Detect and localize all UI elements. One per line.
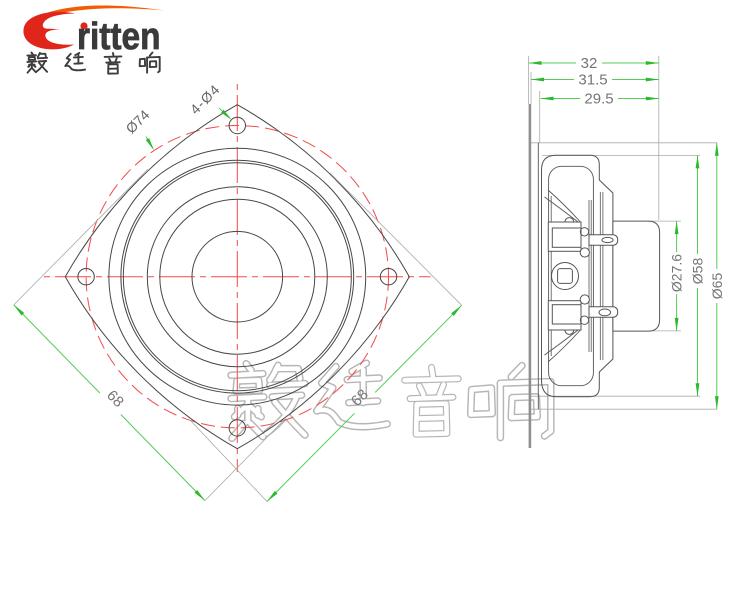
svg-text:Ø74: Ø74 — [122, 106, 152, 136]
svg-text:Ø27.6: Ø27.6 — [669, 254, 685, 292]
svg-text:29.5: 29.5 — [584, 91, 613, 108]
svg-text:32: 32 — [581, 55, 598, 72]
svg-text:4-Ø4: 4-Ø4 — [187, 81, 224, 118]
svg-text:68: 68 — [103, 387, 127, 411]
svg-text:68: 68 — [348, 386, 372, 410]
svg-text:ritten: ritten — [77, 15, 161, 57]
svg-text:31.5: 31.5 — [578, 72, 607, 89]
svg-text:Ø65: Ø65 — [709, 273, 725, 300]
svg-text:Ø58: Ø58 — [690, 258, 706, 285]
